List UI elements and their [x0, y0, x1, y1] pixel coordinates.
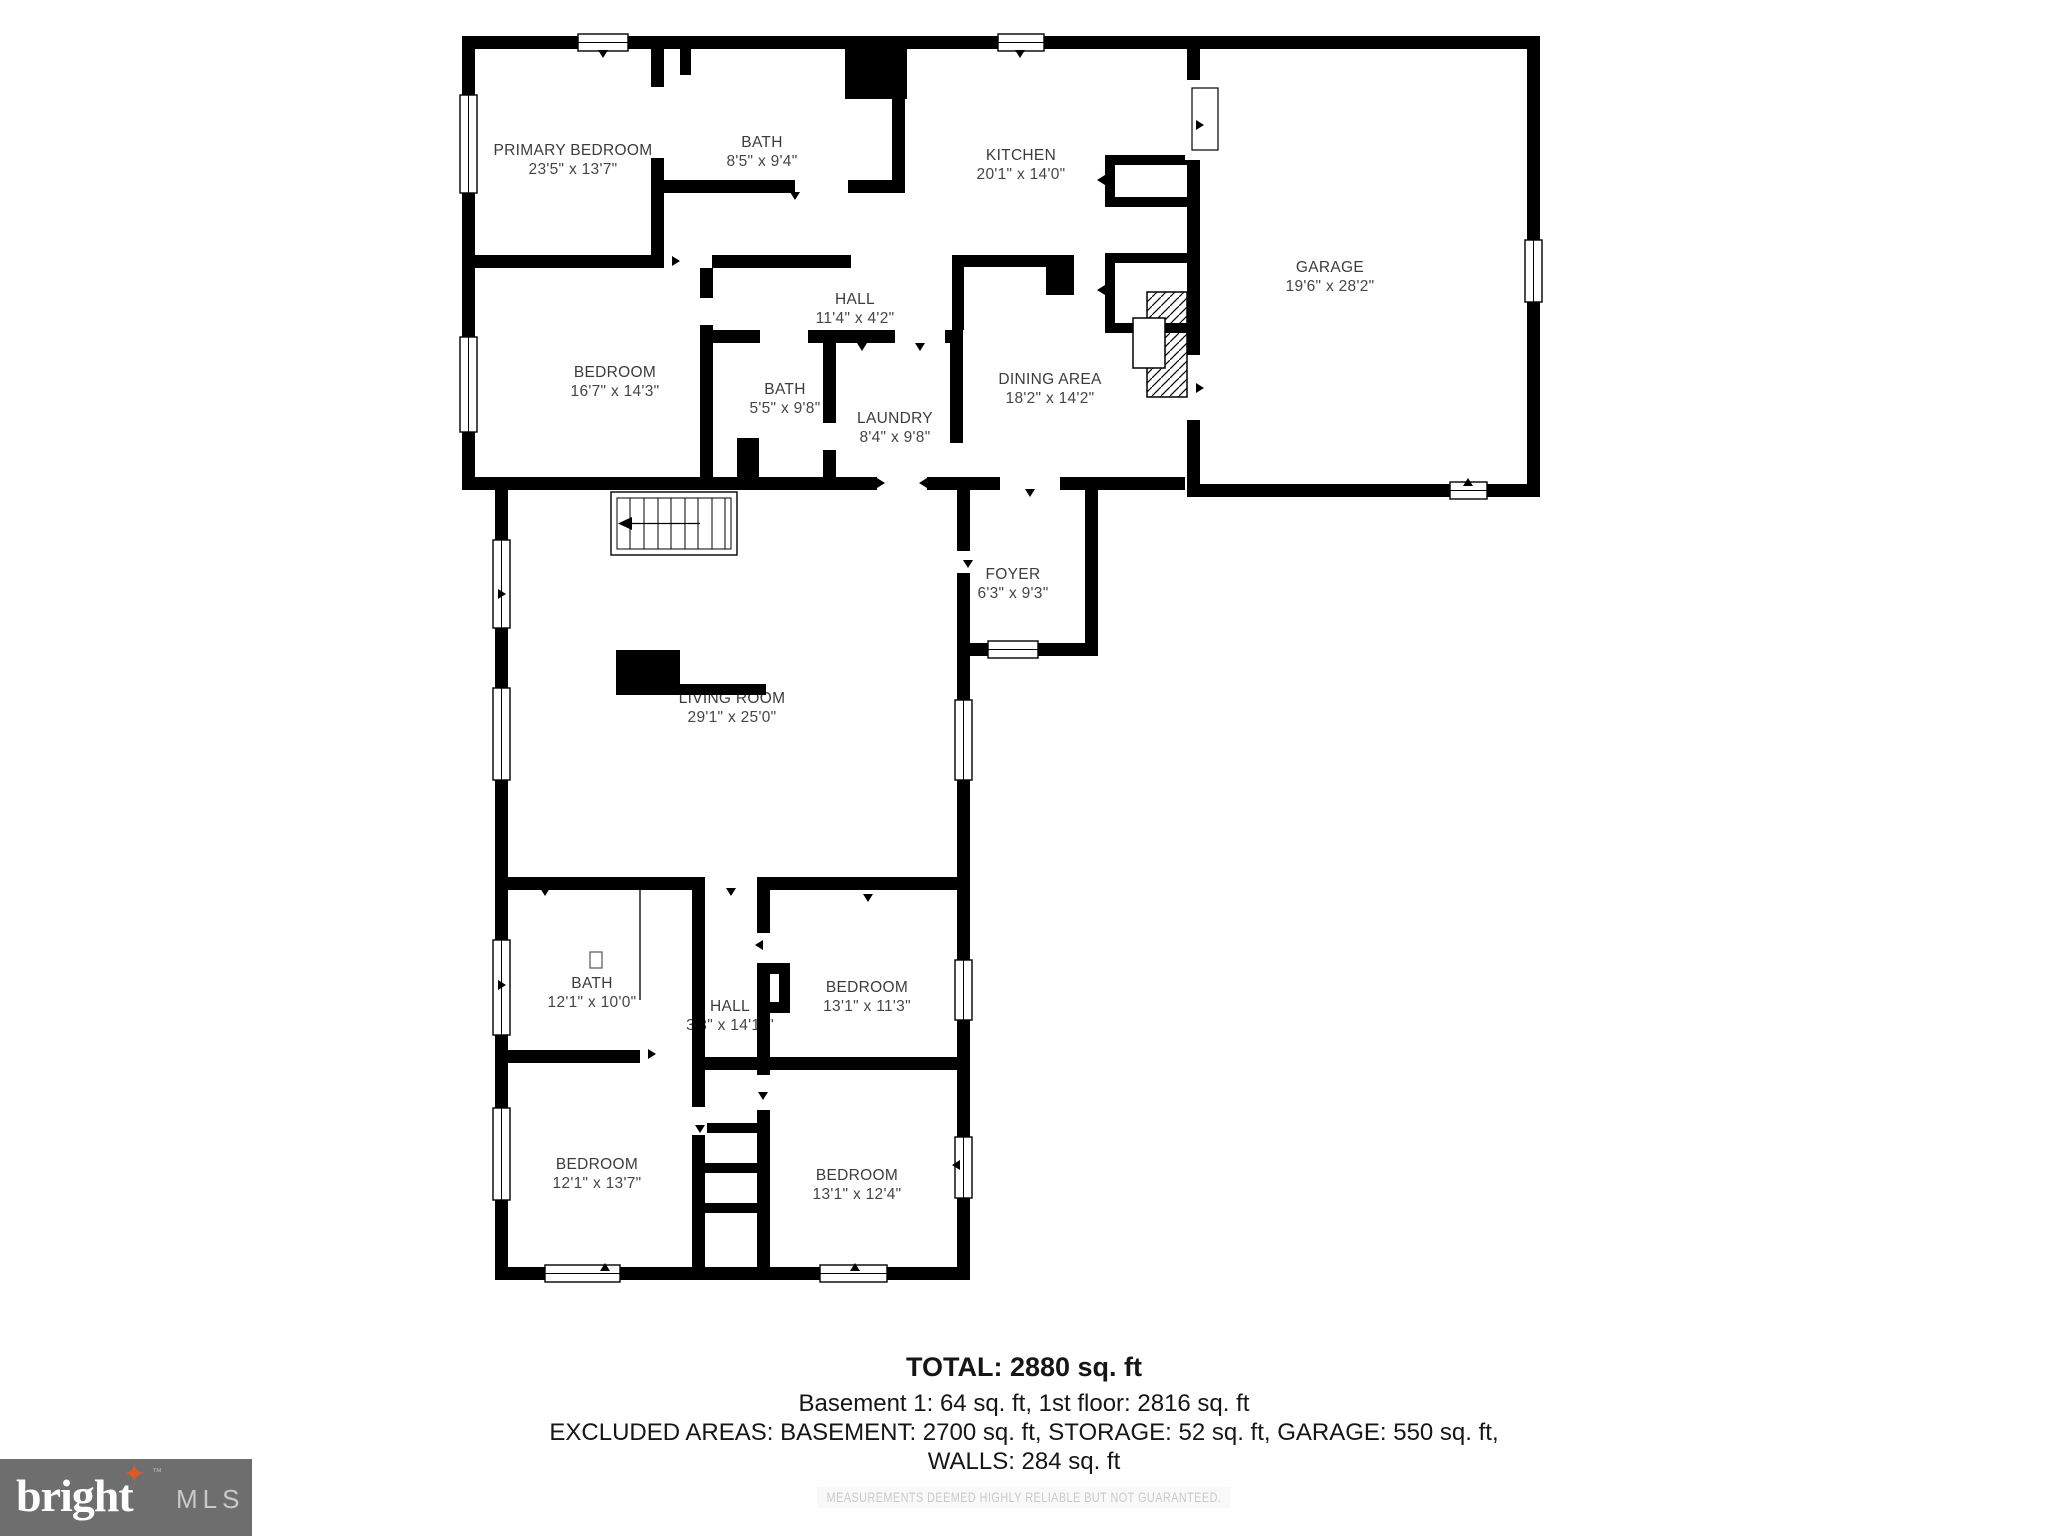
brightmls-logo: bright ✦ ™ MLS — [0, 1459, 252, 1536]
walls — [462, 36, 1540, 1280]
room-label-laundry: LAUNDRY8'4" x 9'8" — [857, 409, 933, 447]
room-label-bath-121: BATH12'1" x 10'0" — [548, 974, 637, 1012]
excluded-areas: EXCLUDED AREAS: BASEMENT: 2700 sq. ft, S… — [549, 1419, 1498, 1447]
star-icon: ✦ — [123, 1459, 146, 1490]
floorplan-drawing — [0, 0, 2048, 1536]
room-label-bedroom-131124: BEDROOM13'1" x 12'4" — [813, 1166, 902, 1204]
total-sqft: TOTAL: 2880 sq. ft — [906, 1352, 1142, 1383]
room-label-living-room: LIVING ROOM29'1" x 25'0" — [679, 689, 786, 727]
room-label-primary-bedroom: PRIMARY BEDROOM23'5" x 13'7" — [494, 141, 653, 179]
floors-sqft: Basement 1: 64 sq. ft, 1st floor: 2816 s… — [799, 1390, 1250, 1418]
room-label-dining-area: DINING AREA18'2" x 14'2" — [998, 370, 1101, 408]
room-label-kitchen: KITCHEN20'1" x 14'0" — [977, 146, 1066, 184]
walls-sqft: WALLS: 284 sq. ft — [928, 1448, 1121, 1476]
room-label-garage: GARAGE19'6" x 28'2" — [1286, 258, 1375, 296]
room-label-bedroom-167: BEDROOM16'7" x 14'3" — [571, 363, 660, 401]
room-label-hall-lower: HALL3'3" x 14'11" — [686, 997, 774, 1035]
door-openings — [640, 80, 1202, 1135]
room-label-bath-upper: BATH8'5" x 9'4" — [726, 133, 797, 171]
measurements-disclaimer: MEASUREMENTS DEEMED HIGHLY RELIABLE BUT … — [817, 1487, 1231, 1508]
door-arrows — [498, 50, 1473, 1271]
room-label-foyer: FOYER6'3" x 9'3" — [977, 565, 1048, 603]
windows — [460, 34, 1542, 1282]
logo-mls-text: MLS — [176, 1484, 244, 1515]
door-leaf — [1192, 88, 1218, 150]
room-label-bath-55: BATH5'5" x 9'8" — [749, 380, 820, 418]
fireplace-hatch — [1133, 292, 1187, 397]
trademark-symbol: ™ — [152, 1467, 162, 1478]
floorplan-page: PRIMARY BEDROOM23'5" x 13'7" BATH8'5" x … — [0, 0, 2048, 1536]
room-label-bedroom-121137: BEDROOM12'1" x 13'7" — [553, 1155, 642, 1193]
staircase — [611, 492, 737, 555]
room-label-bedroom-131113: BEDROOM13'1" x 11'3" — [823, 978, 911, 1016]
room-label-hall-upper: HALL11'4" x 4'2" — [816, 290, 895, 328]
logo-wordmark: bright — [16, 1469, 133, 1522]
